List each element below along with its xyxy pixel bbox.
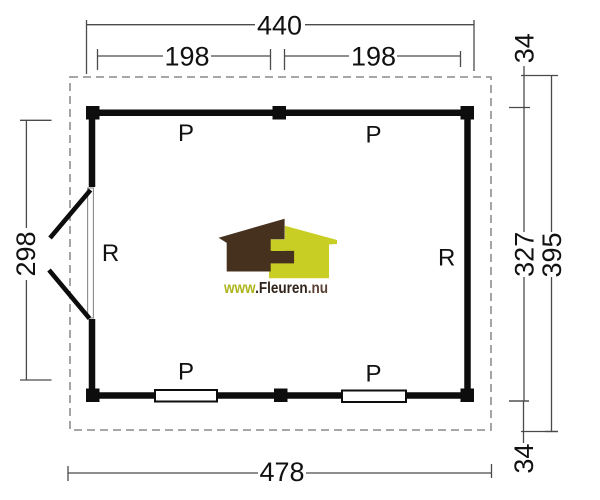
svg-text:P: P [178, 359, 194, 386]
svg-text:298: 298 [11, 231, 41, 276]
svg-text:P: P [365, 361, 381, 388]
svg-text:34: 34 [509, 444, 539, 474]
svg-text:R: R [102, 240, 119, 267]
svg-text:478: 478 [259, 457, 304, 487]
svg-text:R: R [438, 245, 455, 272]
svg-text:327: 327 [509, 232, 539, 277]
svg-text:P: P [178, 120, 194, 147]
svg-text:34: 34 [510, 33, 540, 63]
svg-text:198: 198 [164, 42, 209, 72]
svg-text:P: P [365, 122, 381, 149]
svg-text:395: 395 [537, 232, 567, 277]
svg-text:198: 198 [351, 42, 396, 72]
svg-text:440: 440 [257, 11, 302, 41]
svg-text:www.Fleuren.nu: www.Fleuren.nu [223, 280, 328, 297]
